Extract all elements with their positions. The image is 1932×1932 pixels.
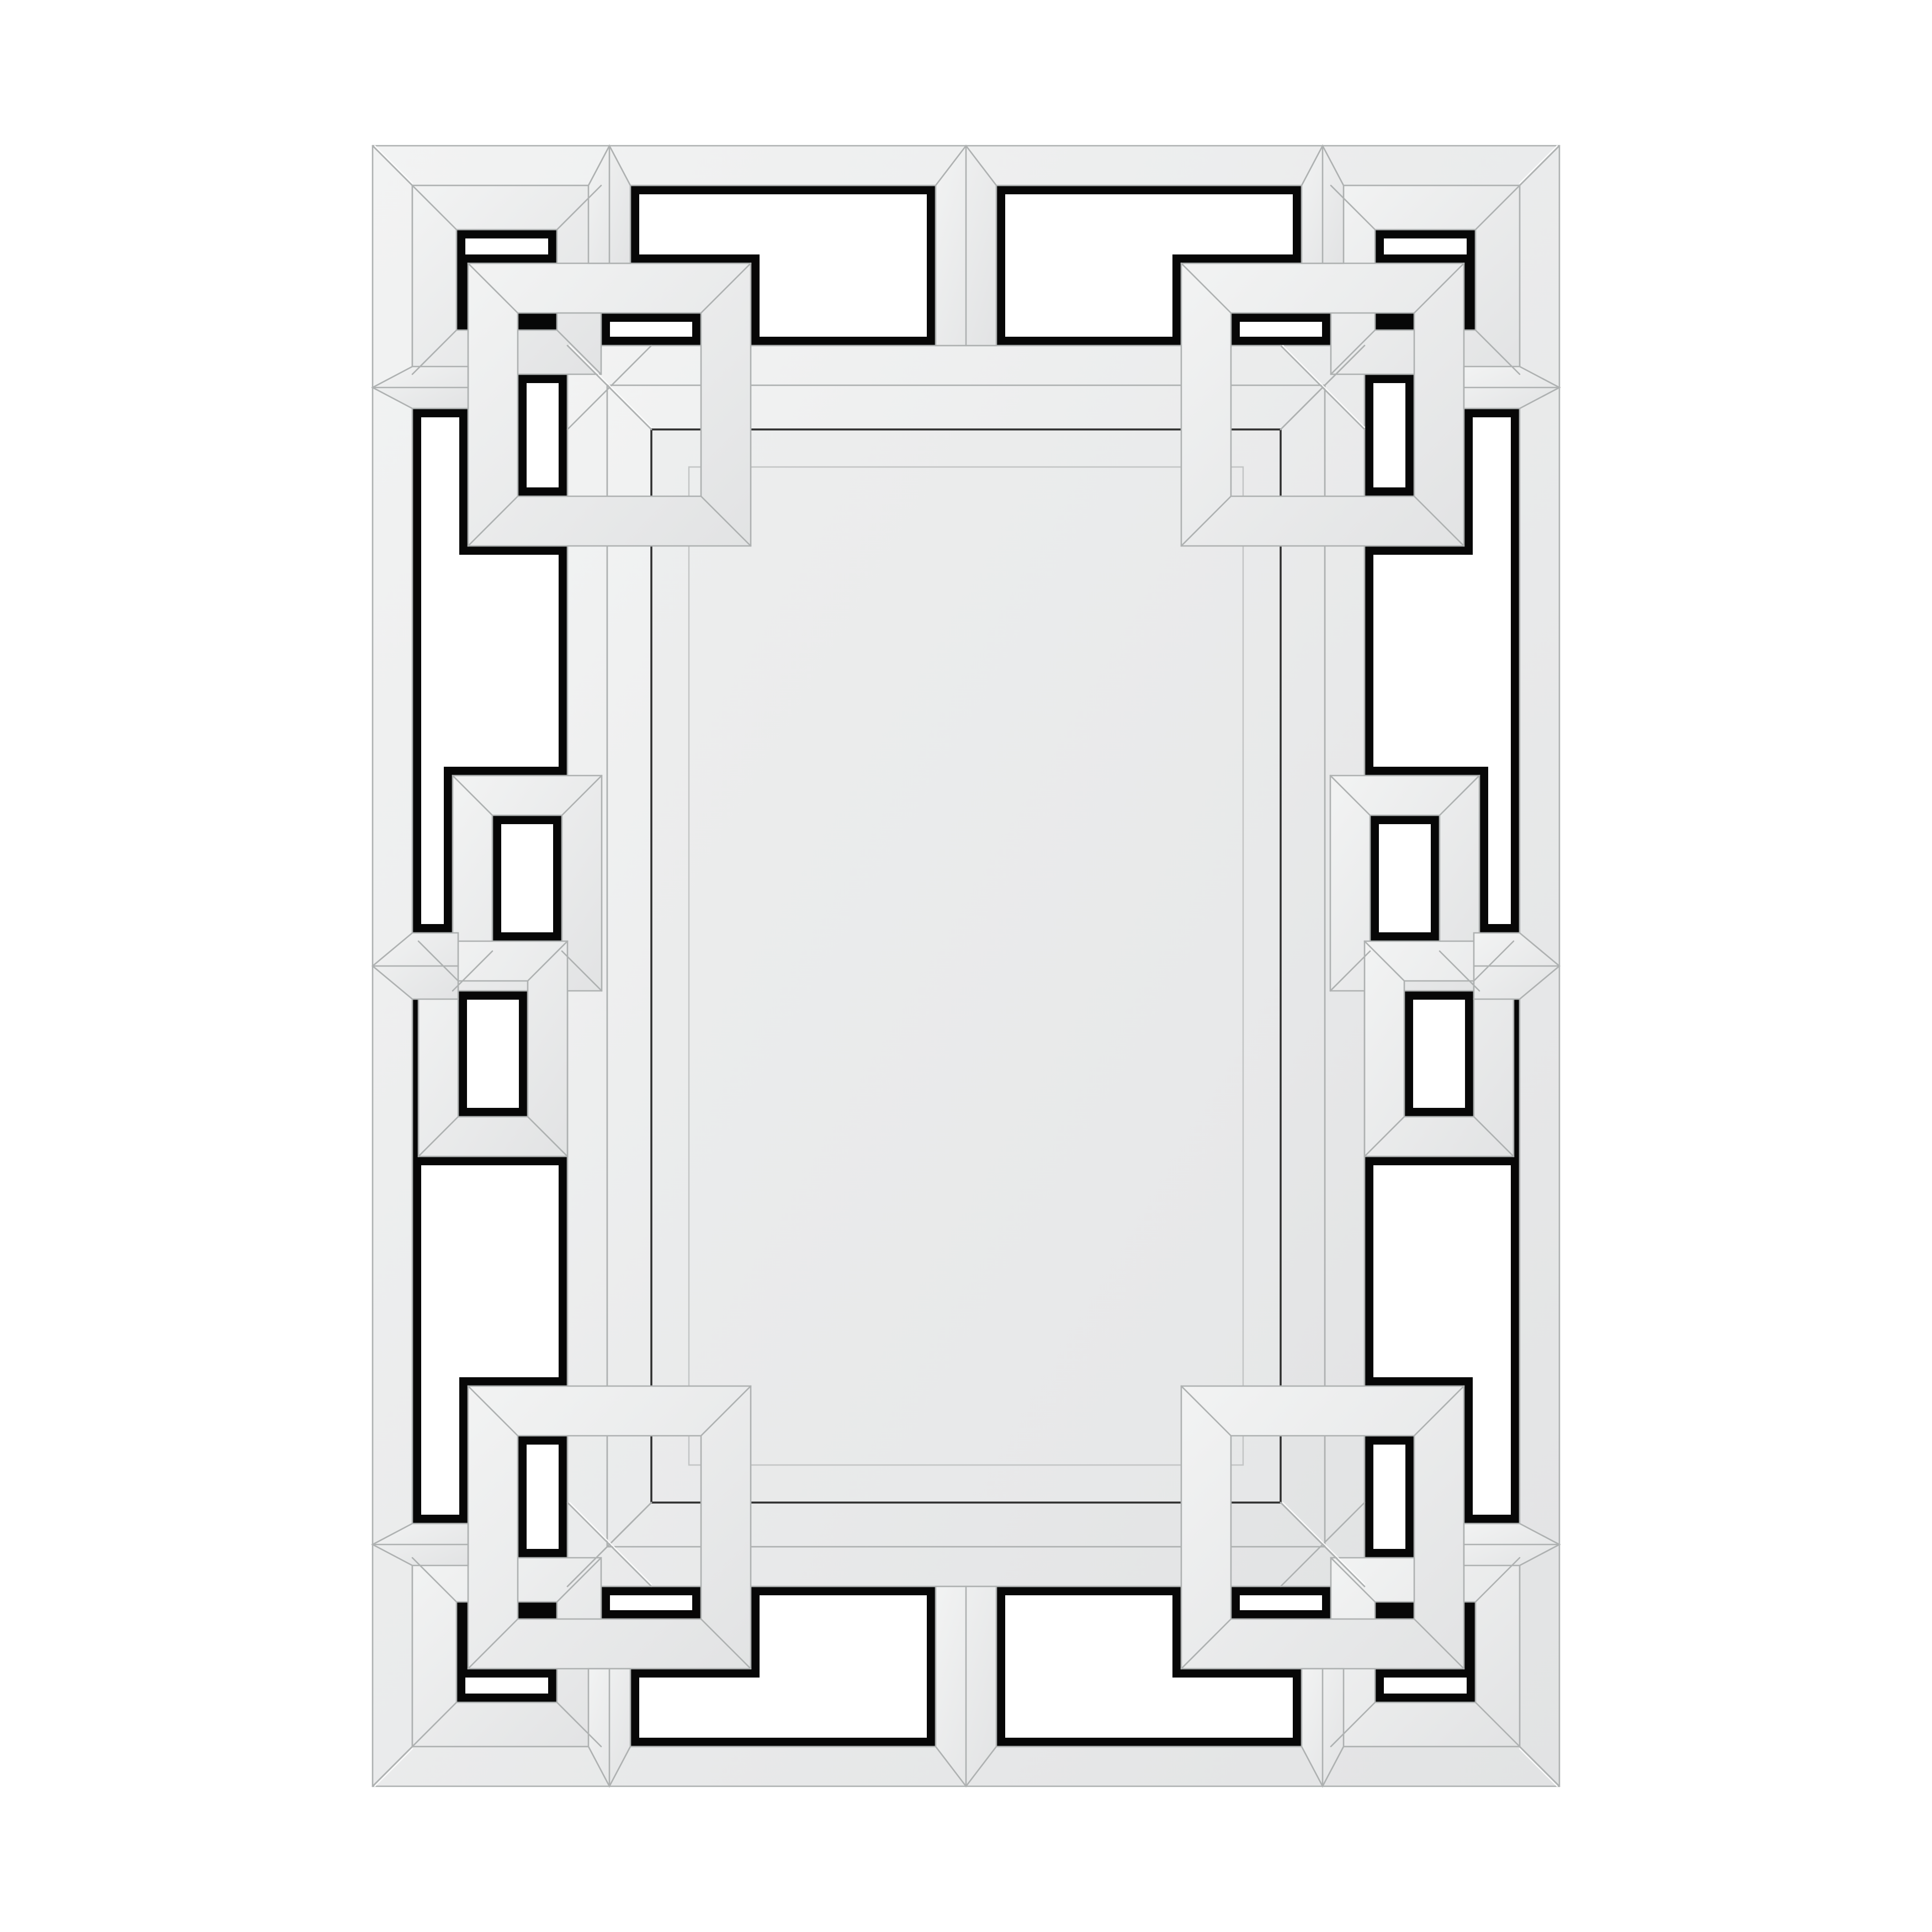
wall-mirror-product-image [0,0,1932,1932]
mirror-panel [651,429,1281,1503]
product-photo-stage [0,0,1932,1932]
